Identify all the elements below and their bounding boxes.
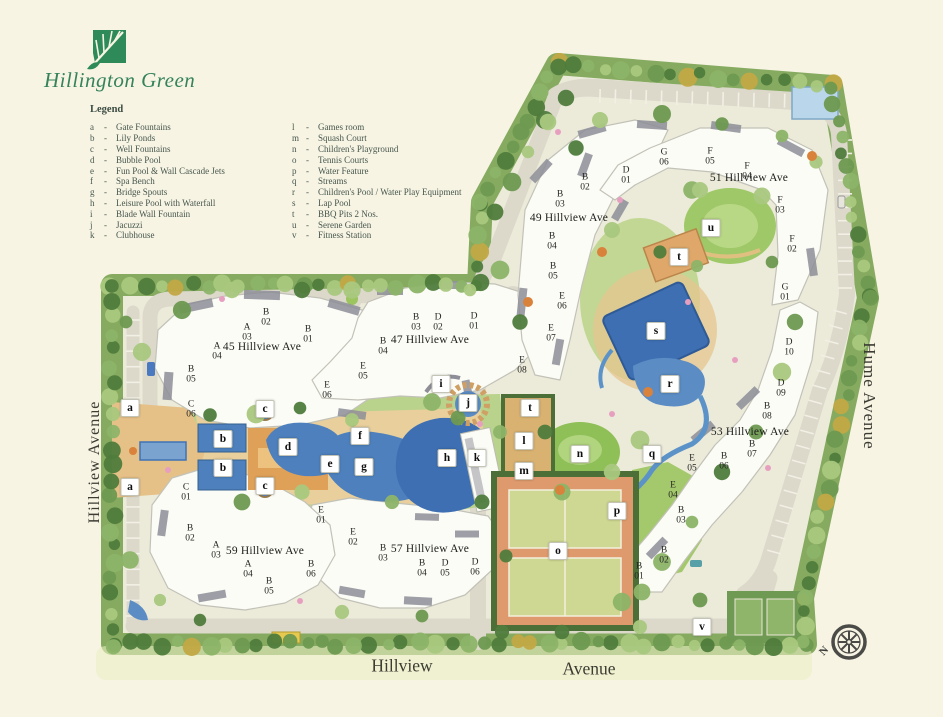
legend-key: r: [292, 187, 306, 197]
legend-column-right: l-Games roomm-Squash Courtn-Children's P…: [292, 122, 461, 241]
legend-dash: -: [306, 198, 318, 208]
legend-row-v: v-Fitness Station: [292, 230, 461, 241]
legend-row-n: n-Children's Playground: [292, 144, 461, 155]
legend-key: u: [292, 220, 306, 230]
legend-label: Lap Pool: [318, 198, 351, 208]
legend-row-q: q-Streams: [292, 176, 461, 187]
legend-label: Blade Wall Fountain: [116, 209, 190, 219]
legend-dash: -: [306, 122, 318, 132]
legend-label: Serene Garden: [318, 220, 371, 230]
street-label-avenue-bottom: Avenue: [562, 659, 615, 680]
legend-dash: -: [104, 209, 116, 219]
legend-key: h: [90, 198, 104, 208]
legend-row-g: g-Bridge Spouts: [90, 187, 225, 198]
legend-label: Tennis Courts: [318, 155, 368, 165]
legend-key: s: [292, 198, 306, 208]
legend-label: Games room: [318, 122, 364, 132]
legend-row-i: i-Blade Wall Fountain: [90, 208, 225, 219]
well-fountain-2: [257, 481, 273, 497]
legend-key: n: [292, 144, 306, 154]
legend-key: g: [90, 187, 104, 197]
legend-row-t: t-BBQ Pits 2 Nos.: [292, 208, 461, 219]
street-label-hillview-bottom: Hillview: [371, 656, 432, 677]
legend-row-b: b-Lily Ponds: [90, 133, 225, 144]
compass-rose: [833, 626, 865, 658]
legend-row-d: d-Bubble Pool: [90, 154, 225, 165]
legend-row-l: l-Games room: [292, 122, 461, 133]
legend-dash: -: [104, 187, 116, 197]
legend-dash: -: [306, 176, 318, 186]
legend-label: Children's Playground: [318, 144, 398, 154]
legend-dash: -: [306, 220, 318, 230]
site-plan-page: 45 Hillview Ave47 Hillview Ave49 Hillvie…: [0, 0, 943, 717]
legend-key: f: [90, 176, 104, 186]
legend-key: o: [292, 155, 306, 165]
legend-row-m: m-Squash Court: [292, 133, 461, 144]
legend-dash: -: [306, 209, 318, 219]
legend-dash: -: [306, 155, 318, 165]
legend-key: k: [90, 230, 104, 240]
legend-dash: -: [104, 176, 116, 186]
legend-label: Clubhouse: [116, 230, 155, 240]
legend-row-h: h-Leisure Pool with Waterfall: [90, 198, 225, 209]
legend-row-s: s-Lap Pool: [292, 198, 461, 209]
legend-row-a: a-Gate Fountains: [90, 122, 225, 133]
legend-label: Squash Court: [318, 133, 367, 143]
legend-label: BBQ Pits 2 Nos.: [318, 209, 378, 219]
legend-row-u: u-Serene Garden: [292, 219, 461, 230]
legend-dash: -: [104, 230, 116, 240]
legend-label: Spa Bench: [116, 176, 155, 186]
legend-column-left: a-Gate Fountainsb-Lily Pondsc-Well Fount…: [90, 122, 225, 241]
legend-key: i: [90, 209, 104, 219]
legend-heading: Legend: [90, 104, 490, 115]
street-label-hillview-avenue-left: Hillview Avenue: [86, 401, 104, 524]
legend-dash: -: [306, 166, 318, 176]
legend-label: Leisure Pool with Waterfall: [116, 198, 215, 208]
legend-key: l: [292, 122, 306, 132]
legend-dash: -: [306, 133, 318, 143]
legend-key: q: [292, 176, 306, 186]
legend-key: e: [90, 166, 104, 176]
legend-key: v: [292, 230, 306, 240]
legend-dash: -: [306, 230, 318, 240]
legend-key: m: [292, 133, 306, 143]
legend-row-p: p-Water Feature: [292, 165, 461, 176]
legend-dash: -: [104, 133, 116, 143]
street-label-hume-avenue: Hume Avenue: [859, 342, 879, 449]
legend-label: Streams: [318, 176, 347, 186]
legend-dash: -: [104, 166, 116, 176]
legend-dash: -: [306, 187, 318, 197]
games-court: [727, 591, 801, 643]
legend-key: p: [292, 166, 306, 176]
legend-key: j: [90, 220, 104, 230]
legend-row-f: f-Spa Bench: [90, 176, 225, 187]
legend-dash: -: [306, 144, 318, 154]
legend-row-o: o-Tennis Courts: [292, 154, 461, 165]
legend-dash: -: [104, 144, 116, 154]
legend-row-c: c-Well Fountains: [90, 144, 225, 155]
legend-label: Bridge Spouts: [116, 187, 167, 197]
legend-row-k: k-Clubhouse: [90, 230, 225, 241]
legend-key: b: [90, 133, 104, 143]
legend-key: d: [90, 155, 104, 165]
legend-dash: -: [104, 122, 116, 132]
legend: Legend a-Gate Fountainsb-Lily Pondsc-Wel…: [90, 104, 490, 120]
legend-dash: -: [104, 198, 116, 208]
legend-row-r: r-Children's Pool / Water Play Equipment: [292, 187, 461, 198]
lily-pond-1: [198, 424, 246, 452]
legend-label: Jacuzzi: [116, 220, 142, 230]
legend-label: Children's Pool / Water Play Equipment: [318, 187, 461, 197]
legend-label: Fitness Station: [318, 230, 371, 240]
legend-key: t: [292, 209, 306, 219]
legend-dash: -: [104, 220, 116, 230]
legend-label: Water Feature: [318, 166, 369, 176]
legend-label: Well Fountains: [116, 144, 171, 154]
legend-label: Fun Pool & Wall Cascade Jets: [116, 166, 225, 176]
legend-dash: -: [104, 155, 116, 165]
legend-key: c: [90, 144, 104, 154]
legend-row-j: j-Jacuzzi: [90, 219, 225, 230]
legend-label: Lily Ponds: [116, 133, 155, 143]
legend-label: Bubble Pool: [116, 155, 161, 165]
legend-row-e: e-Fun Pool & Wall Cascade Jets: [90, 165, 225, 176]
legend-label: Gate Fountains: [116, 122, 171, 132]
lily-pond-2: [198, 460, 246, 490]
page-title: Hillington Green: [44, 68, 195, 93]
hillington-green-logo: [85, 27, 127, 71]
legend-key: a: [90, 122, 104, 132]
